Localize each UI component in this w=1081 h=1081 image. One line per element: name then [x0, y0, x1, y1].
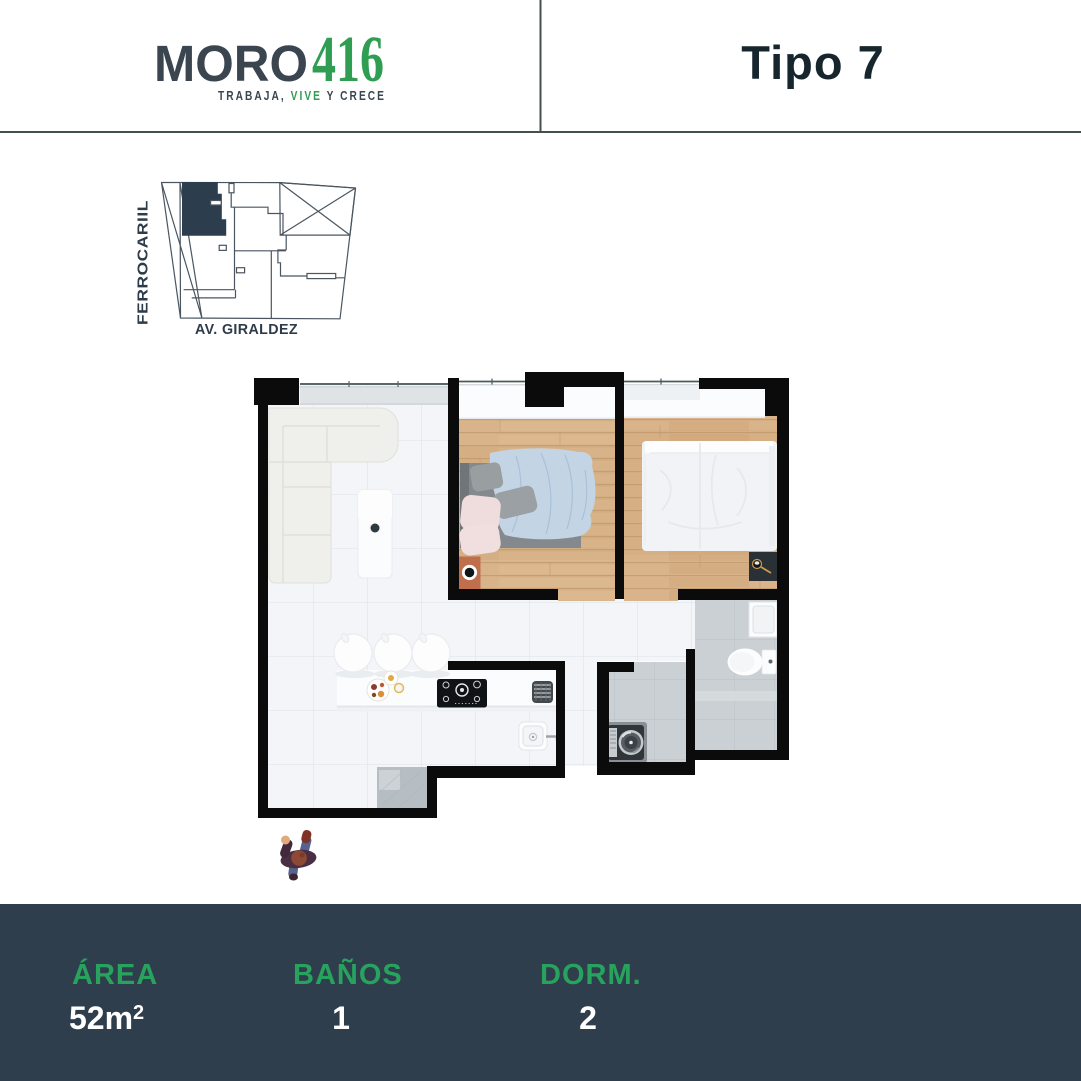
svg-text:Tipo 7: Tipo 7: [741, 36, 885, 89]
svg-text:FERROCARIIL: FERROCARIIL: [135, 200, 152, 325]
svg-text:DORM.: DORM.: [540, 959, 642, 991]
svg-text:AV. GIRALDEZ: AV. GIRALDEZ: [195, 322, 298, 338]
svg-text:MORO: MORO: [154, 35, 308, 92]
svg-text:2: 2: [579, 1000, 597, 1036]
svg-text:ÁREA: ÁREA: [72, 957, 158, 991]
svg-text:416: 416: [312, 23, 384, 96]
svg-text:1: 1: [332, 1000, 350, 1036]
svg-text:52m2: 52m2: [69, 1000, 144, 1036]
svg-text:BAÑOS: BAÑOS: [293, 957, 403, 991]
svg-text:TRABAJA, VIVE Y CRECE: TRABAJA, VIVE Y CRECE: [218, 89, 386, 103]
